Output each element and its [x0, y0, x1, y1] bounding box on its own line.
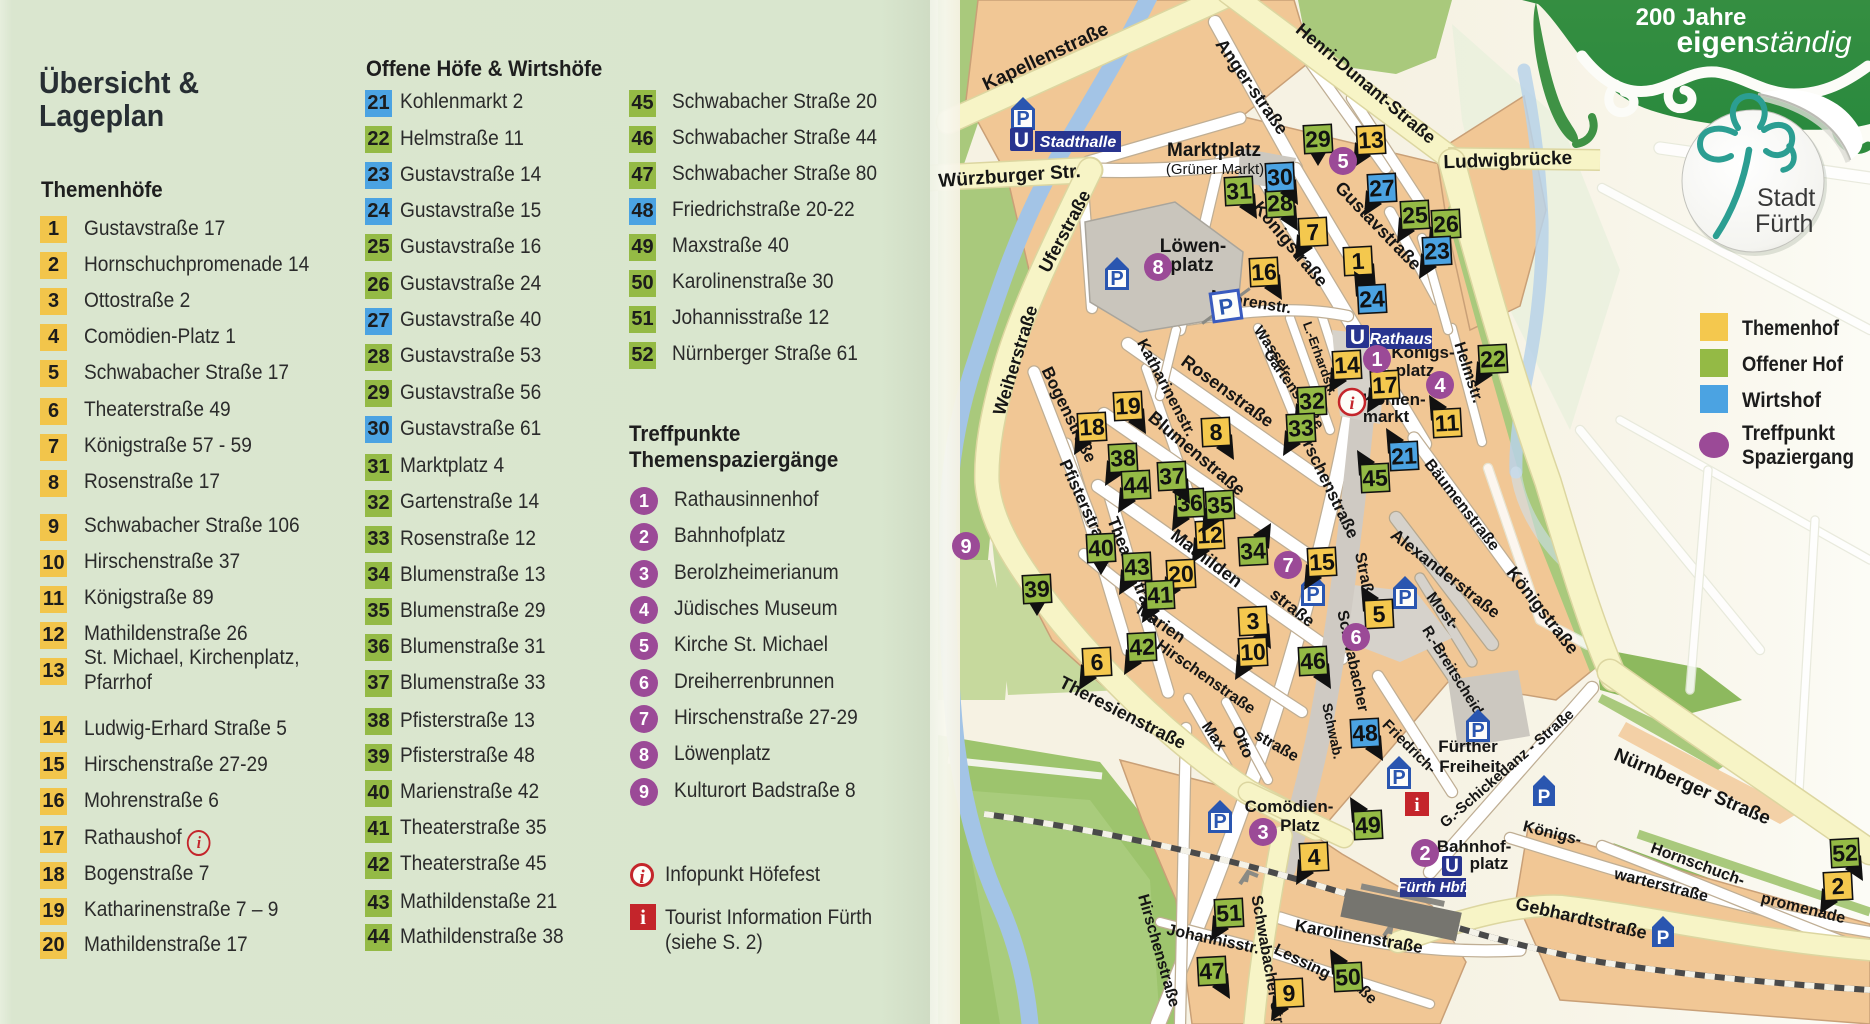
- svg-text:4: 4: [1307, 844, 1321, 871]
- svg-text:38: 38: [1110, 444, 1137, 471]
- svg-text:P: P: [1657, 928, 1670, 949]
- svg-text:Spaziergang: Spaziergang: [1742, 446, 1854, 469]
- svg-text:Freiheit: Freiheit: [1439, 757, 1501, 776]
- svg-text:Fürth: Fürth: [1755, 210, 1813, 238]
- svg-text:9: 9: [1282, 980, 1296, 1007]
- svg-text:15: 15: [1309, 548, 1336, 575]
- svg-text:22: 22: [1480, 345, 1507, 372]
- svg-text:P: P: [1392, 767, 1405, 789]
- svg-text:P: P: [1471, 720, 1484, 742]
- svg-text:30: 30: [1267, 163, 1294, 190]
- svg-text:43: 43: [1124, 553, 1151, 580]
- svg-text:7: 7: [1282, 555, 1293, 577]
- svg-text:44: 44: [1123, 471, 1150, 498]
- svg-text:eigenständig: eigenständig: [1676, 26, 1851, 59]
- svg-text:10: 10: [1240, 638, 1267, 665]
- svg-text:17: 17: [1372, 371, 1399, 398]
- svg-text:3: 3: [1246, 608, 1260, 635]
- svg-text:26: 26: [1433, 210, 1460, 237]
- svg-text:7: 7: [1306, 219, 1320, 246]
- svg-text:2: 2: [1831, 873, 1845, 900]
- svg-text:19: 19: [1115, 392, 1142, 419]
- svg-text:42: 42: [1129, 633, 1156, 660]
- svg-text:35: 35: [1207, 491, 1234, 518]
- svg-text:Löwen-: Löwen-: [1160, 236, 1227, 257]
- svg-text:40: 40: [1088, 534, 1115, 561]
- svg-text:2: 2: [1419, 843, 1430, 865]
- svg-text:33: 33: [1288, 414, 1315, 441]
- svg-text:9: 9: [960, 536, 971, 558]
- svg-text:Offener Hof: Offener Hof: [1742, 353, 1844, 376]
- svg-text:16: 16: [1251, 258, 1278, 285]
- svg-text:23: 23: [1424, 237, 1451, 264]
- svg-text:1: 1: [1371, 349, 1382, 371]
- svg-text:50: 50: [1335, 963, 1362, 990]
- svg-text:P: P: [1016, 108, 1029, 130]
- svg-text:25: 25: [1402, 201, 1429, 228]
- svg-text:Fürth Hbf.: Fürth Hbf.: [1397, 879, 1469, 896]
- svg-text:1: 1: [1351, 248, 1365, 275]
- svg-text:P: P: [1398, 587, 1411, 609]
- svg-text:Themenhof: Themenhof: [1742, 317, 1840, 340]
- svg-text:Comödien-: Comödien-: [1245, 797, 1334, 816]
- svg-text:4: 4: [1434, 375, 1446, 397]
- svg-text:31: 31: [1226, 177, 1253, 204]
- svg-text:52: 52: [1832, 839, 1859, 866]
- svg-text:8: 8: [1152, 257, 1163, 279]
- svg-text:Wirtshof: Wirtshof: [1742, 389, 1822, 412]
- svg-text:6: 6: [1090, 649, 1104, 676]
- svg-text:32: 32: [1299, 387, 1326, 414]
- svg-text:Stadthalle: Stadthalle: [1040, 134, 1117, 151]
- svg-text:48: 48: [1352, 719, 1379, 746]
- svg-text:21: 21: [1391, 442, 1418, 469]
- svg-text:6: 6: [1350, 627, 1361, 649]
- svg-text:3: 3: [1257, 822, 1268, 844]
- svg-text:14: 14: [1334, 351, 1361, 378]
- svg-text:platz: platz: [1170, 255, 1213, 276]
- svg-text:45: 45: [1362, 464, 1389, 491]
- svg-text:46: 46: [1300, 647, 1327, 674]
- svg-text:39: 39: [1024, 575, 1051, 602]
- svg-text:27: 27: [1369, 174, 1396, 201]
- svg-text:i: i: [1349, 393, 1354, 413]
- svg-text:U: U: [1014, 129, 1029, 152]
- svg-text:5: 5: [1337, 151, 1348, 173]
- svg-text:34: 34: [1240, 537, 1267, 564]
- svg-text:P: P: [1110, 268, 1123, 290]
- svg-text:U: U: [1350, 326, 1365, 349]
- svg-text:41: 41: [1147, 581, 1174, 608]
- svg-text:P: P: [1213, 811, 1226, 833]
- svg-text:5: 5: [1372, 601, 1386, 628]
- svg-text:P: P: [1538, 787, 1551, 808]
- svg-text:11: 11: [1434, 409, 1460, 436]
- svg-text:49: 49: [1355, 811, 1382, 838]
- svg-text:29: 29: [1305, 125, 1332, 152]
- svg-text:P: P: [1306, 584, 1319, 606]
- svg-text:Platz: Platz: [1280, 816, 1320, 835]
- svg-text:platz: platz: [1470, 854, 1509, 873]
- svg-text:13: 13: [1358, 126, 1385, 153]
- svg-text:47: 47: [1199, 957, 1226, 984]
- svg-text:Stadt: Stadt: [1757, 184, 1815, 212]
- svg-text:51: 51: [1216, 899, 1243, 926]
- svg-text:Marktplatz: Marktplatz: [1167, 140, 1261, 161]
- svg-text:Treffpunkt: Treffpunkt: [1742, 422, 1835, 445]
- svg-text:Ludwigbrücke: Ludwigbrücke: [1443, 148, 1572, 173]
- svg-text:8: 8: [1209, 419, 1223, 446]
- svg-text:U: U: [1445, 856, 1459, 877]
- svg-text:24: 24: [1359, 285, 1386, 312]
- svg-text:18: 18: [1079, 413, 1106, 440]
- svg-text:(Grüner Markt): (Grüner Markt): [1166, 161, 1264, 178]
- svg-text:i: i: [1414, 795, 1419, 816]
- svg-text:37: 37: [1159, 462, 1186, 489]
